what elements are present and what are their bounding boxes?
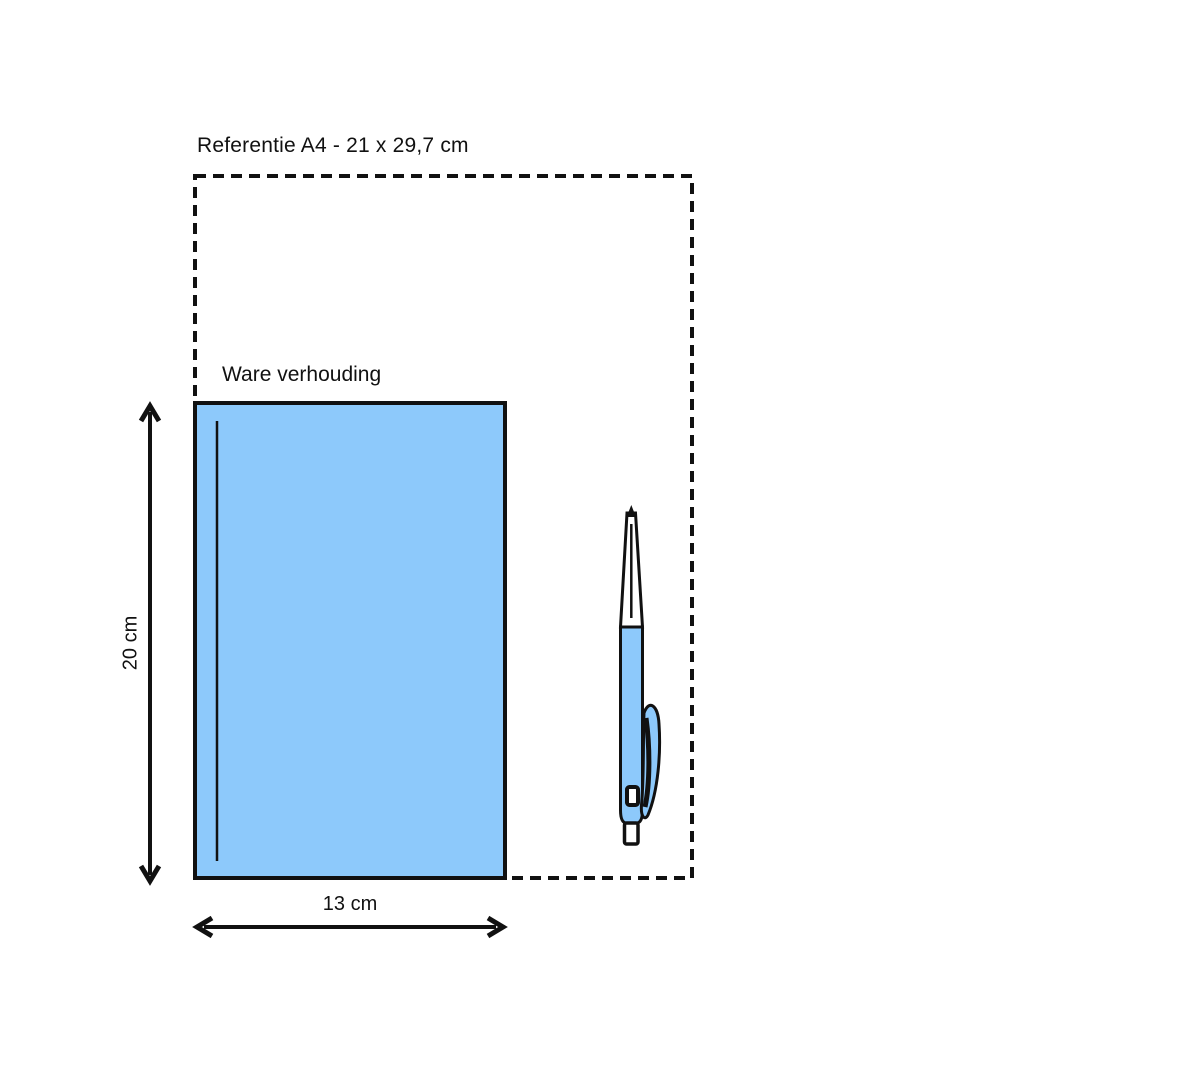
width-dimension-label: 13 cm — [195, 893, 505, 916]
width-dimension-arrow — [197, 918, 503, 936]
pen-window — [627, 787, 638, 805]
height-dimension-arrow — [141, 406, 159, 881]
height-dimension-label: 20 cm — [120, 616, 143, 670]
pen-button — [625, 823, 639, 844]
size-comparison-diagram: Referentie A4 - 21 x 29,7 cm Ware verhou… — [0, 0, 1200, 1066]
reference-label: Referentie A4 - 21 x 29,7 cm — [197, 134, 469, 158]
diagram-shapes — [0, 0, 1200, 1066]
book-rectangle — [195, 403, 505, 878]
pen-tip — [627, 505, 637, 517]
pen-icon — [621, 505, 660, 844]
book-label: Ware verhouding — [222, 363, 381, 387]
